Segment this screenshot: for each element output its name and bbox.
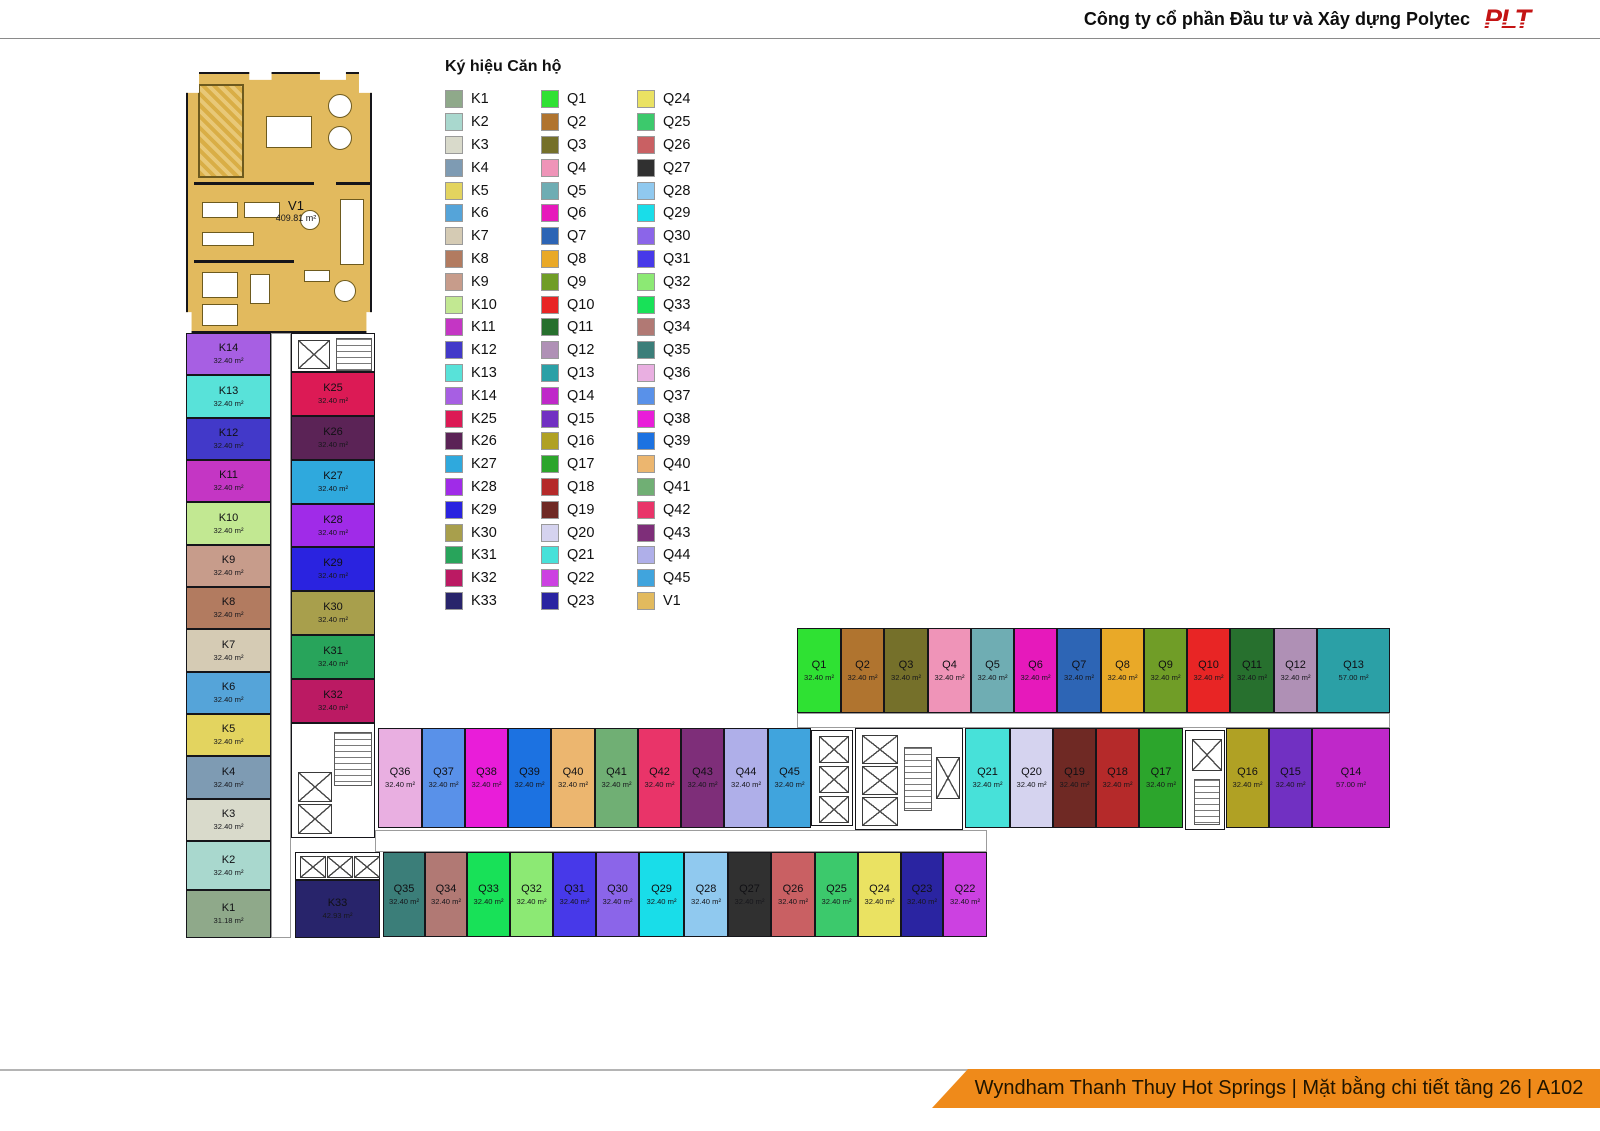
unit-Q32: Q3232.40 m² bbox=[510, 852, 553, 937]
legend-label: K11 bbox=[471, 319, 517, 335]
legend-item-Q1: Q1 bbox=[541, 88, 613, 111]
unit-area: 32.40 m² bbox=[474, 897, 504, 906]
unit-area: 32.40 m² bbox=[865, 897, 895, 906]
legend-item-K14: K14 bbox=[445, 384, 517, 407]
legend-label: Q12 bbox=[567, 342, 613, 358]
unit-id: Q29 bbox=[651, 883, 672, 897]
legend-item-Q27: Q27 bbox=[637, 156, 709, 179]
legend-item-Q22: Q22 bbox=[541, 567, 613, 590]
unit-area: 32.40 m² bbox=[214, 568, 244, 577]
color-swatch-K11 bbox=[445, 318, 463, 336]
legend-item-K13: K13 bbox=[445, 362, 517, 385]
color-swatch-K14 bbox=[445, 387, 463, 405]
color-swatch-K6 bbox=[445, 204, 463, 222]
legend-column: Q1Q2Q3Q4Q5Q6Q7Q8Q9Q10Q11Q12Q13Q14Q15Q16Q… bbox=[541, 88, 613, 612]
color-swatch-Q45 bbox=[637, 569, 655, 587]
unit-area: 32.40 m² bbox=[429, 780, 459, 789]
unit-area: 32.40 m² bbox=[214, 780, 244, 789]
legend-label: K1 bbox=[471, 91, 517, 107]
legend-label: Q34 bbox=[663, 319, 709, 335]
legend-label: Q22 bbox=[567, 570, 613, 586]
stairs-icon bbox=[336, 338, 372, 371]
legend-item-K27: K27 bbox=[445, 453, 517, 476]
unit-id: Q5 bbox=[985, 659, 1000, 673]
unit-Q33: Q3332.40 m² bbox=[467, 852, 510, 937]
elevator-icon bbox=[819, 796, 849, 823]
unit-Q18: Q1832.40 m² bbox=[1096, 728, 1139, 828]
legend-item-Q24: Q24 bbox=[637, 88, 709, 111]
unit-id: K2 bbox=[222, 854, 235, 868]
legend-item-Q17: Q17 bbox=[541, 453, 613, 476]
legend-label: V1 bbox=[663, 593, 709, 609]
color-swatch-Q3 bbox=[541, 136, 559, 154]
color-swatch-Q10 bbox=[541, 296, 559, 314]
unit-id: Q6 bbox=[1028, 659, 1043, 673]
unit-K5: K532.40 m² bbox=[186, 714, 271, 756]
color-swatch-Q36 bbox=[637, 364, 655, 382]
color-swatch-K7 bbox=[445, 227, 463, 245]
unit-area: 32.40 m² bbox=[1151, 673, 1181, 682]
legend-item-Q13: Q13 bbox=[541, 362, 613, 385]
unit-area: 32.40 m² bbox=[214, 441, 244, 450]
color-swatch-K9 bbox=[445, 273, 463, 291]
unit-Q30: Q3032.40 m² bbox=[596, 852, 639, 937]
legend-label: Q36 bbox=[663, 365, 709, 381]
legend-item-Q10: Q10 bbox=[541, 293, 613, 316]
legend-label: Q16 bbox=[567, 433, 613, 449]
unit-area: 32.40 m² bbox=[214, 356, 244, 365]
unit-id: Q19 bbox=[1064, 766, 1085, 780]
unit-area: 32.40 m² bbox=[560, 897, 590, 906]
color-swatch-K29 bbox=[445, 501, 463, 519]
unit-K3: K332.40 m² bbox=[186, 799, 271, 841]
unit-Q36: Q3632.40 m² bbox=[378, 728, 422, 828]
elevator-icon bbox=[298, 772, 332, 802]
unit-area: 32.40 m² bbox=[318, 615, 348, 624]
unit-Q39: Q3932.40 m² bbox=[508, 728, 551, 828]
color-swatch-K12 bbox=[445, 341, 463, 359]
unit-id: K6 bbox=[222, 681, 235, 695]
legend-item-Q8: Q8 bbox=[541, 248, 613, 271]
unit-area: 32.40 m² bbox=[389, 897, 419, 906]
service-core bbox=[291, 333, 375, 372]
unit-area: 32.40 m² bbox=[472, 780, 502, 789]
legend-item-Q20: Q20 bbox=[541, 521, 613, 544]
legend-item-K31: K31 bbox=[445, 544, 517, 567]
unit-id: Q4 bbox=[942, 659, 957, 673]
unit-Q31: Q3132.40 m² bbox=[553, 852, 596, 937]
legend-item-Q26: Q26 bbox=[637, 134, 709, 157]
legend-label: Q41 bbox=[663, 479, 709, 495]
furniture bbox=[202, 202, 238, 218]
unit-id: Q44 bbox=[736, 766, 757, 780]
legend-item-K7: K7 bbox=[445, 225, 517, 248]
unit-id: Q25 bbox=[826, 883, 847, 897]
unit-id: Q27 bbox=[739, 883, 760, 897]
legend-label: Q31 bbox=[663, 251, 709, 267]
color-swatch-Q35 bbox=[637, 341, 655, 359]
unit-K11: K1132.40 m² bbox=[186, 460, 271, 502]
legend-item-Q29: Q29 bbox=[637, 202, 709, 225]
legend-label: K26 bbox=[471, 433, 517, 449]
color-swatch-Q37 bbox=[637, 387, 655, 405]
unit-area: 32.40 m² bbox=[214, 610, 244, 619]
color-swatch-Q12 bbox=[541, 341, 559, 359]
unit-id: Q41 bbox=[606, 766, 627, 780]
unit-id: Q23 bbox=[912, 883, 933, 897]
elevator-icon bbox=[862, 766, 898, 795]
furniture bbox=[250, 274, 270, 304]
unit-id: K29 bbox=[323, 557, 343, 571]
unit-area: 32.40 m² bbox=[1194, 673, 1224, 682]
legend-item-K10: K10 bbox=[445, 293, 517, 316]
stairs-icon bbox=[334, 732, 372, 786]
unit-area: 32.40 m² bbox=[735, 897, 765, 906]
legend-item-Q12: Q12 bbox=[541, 339, 613, 362]
unit-Q21: Q2132.40 m² bbox=[965, 728, 1010, 828]
pool-area bbox=[198, 84, 244, 178]
color-swatch-K25 bbox=[445, 410, 463, 428]
unit-Q24: Q2432.40 m² bbox=[858, 852, 901, 937]
legend-item-K12: K12 bbox=[445, 339, 517, 362]
elevator-icon bbox=[354, 856, 380, 878]
floor-plan-page: Công ty cổ phần Đầu tư và Xây dựng Polyt… bbox=[0, 0, 1600, 1131]
unit-area: 32.40 m² bbox=[775, 780, 805, 789]
unit-area: 32.40 m² bbox=[1237, 673, 1267, 682]
legend-item-Q15: Q15 bbox=[541, 407, 613, 430]
color-swatch-K10 bbox=[445, 296, 463, 314]
legend-item-Q3: Q3 bbox=[541, 134, 613, 157]
interior-wall bbox=[194, 182, 314, 185]
legend-label: Q4 bbox=[567, 160, 613, 176]
legend-item-Q25: Q25 bbox=[637, 111, 709, 134]
legend-label: Q17 bbox=[567, 456, 613, 472]
color-swatch-Q21 bbox=[541, 546, 559, 564]
legend-label: K29 bbox=[471, 502, 517, 518]
unit-area: 32.40 m² bbox=[1281, 673, 1311, 682]
color-swatch-Q43 bbox=[637, 524, 655, 542]
unit-id: K33 bbox=[328, 897, 348, 911]
legend-label: K32 bbox=[471, 570, 517, 586]
legend-label: Q29 bbox=[663, 205, 709, 221]
unit-area: 32.40 m² bbox=[935, 673, 965, 682]
unit-Q37: Q3732.40 m² bbox=[422, 728, 465, 828]
unit-id: Q42 bbox=[649, 766, 670, 780]
legend-columns: K1K2K3K4K5K6K7K8K9K10K11K12K13K14K25K26K… bbox=[445, 88, 709, 612]
unit-Q35: Q3532.40 m² bbox=[383, 852, 425, 937]
unit-id: K9 bbox=[222, 554, 235, 568]
unit-Q28: Q2832.40 m² bbox=[684, 852, 728, 937]
corridor-vertical-left-wing bbox=[271, 333, 291, 938]
legend-item-Q28: Q28 bbox=[637, 179, 709, 202]
unit-area: 32.40 m² bbox=[318, 703, 348, 712]
unit-id: Q20 bbox=[1021, 766, 1042, 780]
color-swatch-Q19 bbox=[541, 501, 559, 519]
unit-area: 32.40 m² bbox=[1146, 780, 1176, 789]
unit-area: 32.40 m² bbox=[848, 673, 878, 682]
unit-area: 32.40 m² bbox=[822, 897, 852, 906]
unit-area: 32.40 m² bbox=[318, 484, 348, 493]
legend-label: K10 bbox=[471, 297, 517, 313]
unit-id: K32 bbox=[323, 689, 343, 703]
legend-item-Q45: Q45 bbox=[637, 567, 709, 590]
legend-label: Q30 bbox=[663, 228, 709, 244]
legend-item-Q19: Q19 bbox=[541, 498, 613, 521]
color-swatch-Q7 bbox=[541, 227, 559, 245]
elevator-icon bbox=[936, 757, 960, 799]
unit-Q5: Q532.40 m² bbox=[971, 628, 1014, 713]
unit-id: K27 bbox=[323, 470, 343, 484]
legend-label: K8 bbox=[471, 251, 517, 267]
color-swatch-Q32 bbox=[637, 273, 655, 291]
unit-area: 32.40 m² bbox=[517, 897, 547, 906]
legend-label: Q32 bbox=[663, 274, 709, 290]
unit-area: 32.40 m² bbox=[731, 780, 761, 789]
unit-Q45: Q4532.40 m² bbox=[768, 728, 811, 828]
sheet-title: Wyndham Thanh Thuy Hot Springs | Mặt bằn… bbox=[949, 1077, 1584, 1100]
stairs-icon bbox=[904, 747, 932, 811]
unit-K14: K1432.40 m² bbox=[186, 333, 271, 375]
legend-item-Q43: Q43 bbox=[637, 521, 709, 544]
legend-label: Q3 bbox=[567, 137, 613, 153]
unit-K1: K131.18 m² bbox=[186, 890, 271, 938]
unit-K25: K2532.40 m² bbox=[291, 372, 375, 416]
legend-label: Q7 bbox=[567, 228, 613, 244]
color-swatch-Q15 bbox=[541, 410, 559, 428]
color-swatch-Q4 bbox=[541, 159, 559, 177]
unit-id: K30 bbox=[323, 601, 343, 615]
color-swatch-Q25 bbox=[637, 113, 655, 131]
unit-id: Q26 bbox=[783, 883, 804, 897]
color-swatch-Q1 bbox=[541, 90, 559, 108]
logo-stripes-decoration bbox=[1484, 19, 1562, 28]
color-swatch-K3 bbox=[445, 136, 463, 154]
unit-Q10: Q1032.40 m² bbox=[1187, 628, 1230, 713]
legend-label: K6 bbox=[471, 205, 517, 221]
legend-item-Q18: Q18 bbox=[541, 476, 613, 499]
elevator-icon bbox=[862, 735, 898, 764]
unit-area: 32.40 m² bbox=[1017, 780, 1047, 789]
unit-id: Q38 bbox=[476, 766, 497, 780]
round-table bbox=[334, 280, 356, 302]
legend-item-K4: K4 bbox=[445, 156, 517, 179]
color-swatch-Q40 bbox=[637, 455, 655, 473]
color-swatch-Q27 bbox=[637, 159, 655, 177]
legend-label: Q6 bbox=[567, 205, 613, 221]
unit-id: K31 bbox=[323, 645, 343, 659]
legend-item-Q31: Q31 bbox=[637, 248, 709, 271]
legend-item-K8: K8 bbox=[445, 248, 517, 271]
legend-item-K2: K2 bbox=[445, 111, 517, 134]
color-swatch-Q14 bbox=[541, 387, 559, 405]
unit-K27: K2732.40 m² bbox=[291, 460, 375, 504]
legend-item-Q21: Q21 bbox=[541, 544, 613, 567]
unit-Q1: Q132.40 m² bbox=[797, 628, 841, 713]
unit-K8: K832.40 m² bbox=[186, 587, 271, 629]
unit-area: 42.93 m² bbox=[323, 911, 353, 920]
service-core bbox=[855, 728, 963, 830]
unit-K29: K2932.40 m² bbox=[291, 547, 375, 591]
legend-label: Q8 bbox=[567, 251, 613, 267]
unit-Q42: Q4232.40 m² bbox=[638, 728, 681, 828]
color-swatch-Q9 bbox=[541, 273, 559, 291]
unit-id: K8 bbox=[222, 596, 235, 610]
color-swatch-K28 bbox=[445, 478, 463, 496]
unit-Q16: Q1632.40 m² bbox=[1226, 728, 1269, 828]
color-swatch-K1 bbox=[445, 90, 463, 108]
unit-Q4: Q432.40 m² bbox=[928, 628, 971, 713]
unit-area: 32.40 m² bbox=[950, 897, 980, 906]
color-swatch-Q31 bbox=[637, 250, 655, 268]
legend-item-K30: K30 bbox=[445, 521, 517, 544]
color-swatch-Q6 bbox=[541, 204, 559, 222]
unit-id: K13 bbox=[219, 385, 239, 399]
color-swatch-Q23 bbox=[541, 592, 559, 610]
legend-label: Q28 bbox=[663, 183, 709, 199]
legend-label: K14 bbox=[471, 388, 517, 404]
unit-Q34: Q3432.40 m² bbox=[425, 852, 467, 937]
color-swatch-Q8 bbox=[541, 250, 559, 268]
unit-id: K7 bbox=[222, 639, 235, 653]
unit-area: 32.40 m² bbox=[647, 897, 677, 906]
unit-id: Q7 bbox=[1072, 659, 1087, 673]
unit-Q19: Q1932.40 m² bbox=[1053, 728, 1096, 828]
legend-label: Q42 bbox=[663, 502, 709, 518]
legend-item-K11: K11 bbox=[445, 316, 517, 339]
elevator-icon bbox=[327, 856, 353, 878]
unit-id: Q14 bbox=[1341, 766, 1362, 780]
color-swatch-Q29 bbox=[637, 204, 655, 222]
unit-id: K11 bbox=[219, 469, 238, 483]
legend-item-Q44: Q44 bbox=[637, 544, 709, 567]
unit-area: 32.40 m² bbox=[1064, 673, 1094, 682]
unit-area: 32.40 m² bbox=[907, 897, 937, 906]
color-swatch-K5 bbox=[445, 182, 463, 200]
legend-label: K31 bbox=[471, 547, 517, 563]
unit-id: Q22 bbox=[955, 883, 976, 897]
company-name: Công ty cổ phần Đầu tư và Xây dựng Polyt… bbox=[1084, 9, 1470, 30]
footer-banner: Wyndham Thanh Thuy Hot Springs | Mặt bằn… bbox=[932, 1069, 1600, 1108]
service-core bbox=[1185, 730, 1225, 830]
legend-label: Q5 bbox=[567, 183, 613, 199]
table bbox=[328, 94, 352, 118]
unit-id: Q31 bbox=[564, 883, 585, 897]
legend-label: K4 bbox=[471, 160, 517, 176]
legend-item-Q5: Q5 bbox=[541, 179, 613, 202]
legend-column: Q24Q25Q26Q27Q28Q29Q30Q31Q32Q33Q34Q35Q36Q… bbox=[637, 88, 709, 612]
legend-label: Q43 bbox=[663, 525, 709, 541]
unit-id: Q45 bbox=[779, 766, 800, 780]
legend-label: K9 bbox=[471, 274, 517, 290]
legend-item-K32: K32 bbox=[445, 567, 517, 590]
legend-label: Q24 bbox=[663, 91, 709, 107]
legend-item-K6: K6 bbox=[445, 202, 517, 225]
color-swatch-Q39 bbox=[637, 432, 655, 450]
legend-label: Q15 bbox=[567, 411, 613, 427]
elevator-icon bbox=[298, 804, 332, 834]
unit-area: 409.81 m² bbox=[266, 213, 326, 223]
unit-id: V1 bbox=[266, 198, 326, 213]
unit-id: Q43 bbox=[692, 766, 713, 780]
color-swatch-Q5 bbox=[541, 182, 559, 200]
kitchen-counter bbox=[304, 270, 330, 282]
color-swatch-Q2 bbox=[541, 113, 559, 131]
unit-id: Q16 bbox=[1237, 766, 1258, 780]
unit-Q2: Q232.40 m² bbox=[841, 628, 884, 713]
color-swatch-K27 bbox=[445, 455, 463, 473]
unit-area: 32.40 m² bbox=[1103, 780, 1133, 789]
unit-id: Q12 bbox=[1285, 659, 1306, 673]
bed bbox=[202, 272, 238, 298]
unit-area: 32.40 m² bbox=[1108, 673, 1138, 682]
unit-Q3: Q332.40 m² bbox=[884, 628, 928, 713]
furniture bbox=[202, 232, 254, 246]
legend-item-Q7: Q7 bbox=[541, 225, 613, 248]
unit-area: 32.40 m² bbox=[691, 897, 721, 906]
unit-area: 32.40 m² bbox=[891, 673, 921, 682]
color-swatch-Q20 bbox=[541, 524, 559, 542]
unit-id: Q17 bbox=[1151, 766, 1172, 780]
unit-area: 32.40 m² bbox=[318, 659, 348, 668]
unit-Q40: Q4032.40 m² bbox=[551, 728, 595, 828]
color-swatch-Q26 bbox=[637, 136, 655, 154]
unit-id: Q1 bbox=[812, 659, 827, 673]
unit-id: Q28 bbox=[696, 883, 717, 897]
elevator-icon bbox=[300, 856, 326, 878]
legend-label: Q27 bbox=[663, 160, 709, 176]
unit-Q44: Q4432.40 m² bbox=[724, 728, 768, 828]
corridor-bottom-wing bbox=[375, 830, 987, 852]
legend-label: Q13 bbox=[567, 365, 613, 381]
legend-label: Q18 bbox=[567, 479, 613, 495]
service-core bbox=[291, 723, 375, 838]
unit-id: Q2 bbox=[855, 659, 870, 673]
color-swatch-K33 bbox=[445, 592, 463, 610]
unit-area: 31.18 m² bbox=[214, 916, 244, 925]
legend-item-K3: K3 bbox=[445, 134, 517, 157]
unit-K28: K2832.40 m² bbox=[291, 504, 375, 547]
unit-Q26: Q2632.40 m² bbox=[771, 852, 815, 937]
legend-label: Q38 bbox=[663, 411, 709, 427]
unit-area: 32.40 m² bbox=[318, 396, 348, 405]
unit-area: 32.40 m² bbox=[214, 737, 244, 746]
color-swatch-K30 bbox=[445, 524, 463, 542]
legend-item-K1: K1 bbox=[445, 88, 517, 111]
unit-K10: K1032.40 m² bbox=[186, 502, 271, 545]
elevator-icon bbox=[862, 797, 898, 826]
unit-Q8: Q832.40 m² bbox=[1101, 628, 1144, 713]
legend-item-Q4: Q4 bbox=[541, 156, 613, 179]
legend-label: Q45 bbox=[663, 570, 709, 586]
unit-area: 32.40 m² bbox=[214, 483, 244, 492]
elevator-icon bbox=[819, 766, 849, 793]
legend-item-Q36: Q36 bbox=[637, 362, 709, 385]
unit-id: K14 bbox=[219, 342, 239, 356]
legend-label: Q33 bbox=[663, 297, 709, 313]
service-core bbox=[295, 852, 380, 880]
color-swatch-Q33 bbox=[637, 296, 655, 314]
legend-item-Q6: Q6 bbox=[541, 202, 613, 225]
unit-id: Q18 bbox=[1107, 766, 1128, 780]
unit-K6: K632.40 m² bbox=[186, 672, 271, 714]
unit-area: 32.40 m² bbox=[318, 528, 348, 537]
unit-id: Q35 bbox=[394, 883, 415, 897]
legend-item-Q33: Q33 bbox=[637, 293, 709, 316]
color-swatch-Q42 bbox=[637, 501, 655, 519]
unit-id: Q37 bbox=[433, 766, 454, 780]
unit-K33: K3342.93 m² bbox=[295, 880, 380, 938]
unit-id: Q39 bbox=[519, 766, 540, 780]
